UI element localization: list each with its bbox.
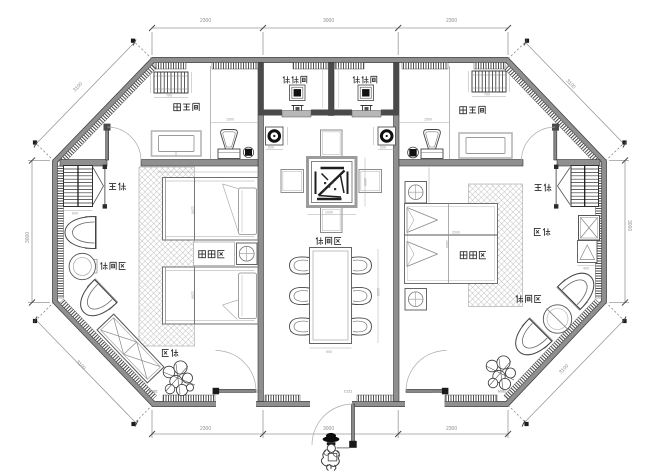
svg-text:C1815: C1815 — [479, 60, 489, 64]
svg-text:2000: 2000 — [452, 231, 460, 235]
svg-text:3000: 3000 — [323, 18, 334, 24]
svg-text:C1815: C1815 — [160, 60, 170, 64]
svg-text:C2015: C2015 — [409, 60, 419, 64]
svg-text:900: 900 — [326, 350, 332, 354]
svg-text:600: 600 — [380, 146, 386, 150]
svg-text:1500: 1500 — [226, 118, 234, 122]
svg-text:C121: C121 — [344, 390, 352, 394]
svg-text:C2015: C2015 — [219, 60, 229, 64]
svg-text:3000: 3000 — [25, 232, 31, 243]
svg-text:600: 600 — [72, 212, 78, 216]
svg-text:M082: M082 — [498, 390, 507, 394]
svg-text:C201: C201 — [432, 390, 440, 394]
svg-text:2300: 2300 — [446, 426, 457, 432]
svg-text:2300: 2300 — [200, 18, 211, 24]
svg-text:C201: C201 — [254, 390, 262, 394]
svg-text:M082: M082 — [149, 390, 158, 394]
svg-text:1000: 1000 — [325, 211, 333, 215]
svg-text:700: 700 — [166, 94, 172, 98]
svg-text:C0915: C0915 — [341, 60, 351, 64]
svg-text:C0915: C0915 — [281, 60, 291, 64]
svg-text:2300: 2300 — [446, 18, 457, 24]
svg-text:1800: 1800 — [445, 240, 449, 248]
svg-text:600: 600 — [268, 146, 274, 150]
svg-text:2300: 2300 — [200, 426, 211, 432]
svg-text:700: 700 — [484, 93, 490, 97]
svg-text:1500: 1500 — [363, 178, 367, 186]
svg-text:1500: 1500 — [424, 118, 432, 122]
svg-text:1200: 1200 — [191, 206, 195, 214]
svg-text:400: 400 — [583, 267, 589, 271]
svg-text:3000: 3000 — [626, 220, 632, 231]
svg-text:1200: 1200 — [191, 291, 195, 299]
svg-text:3000: 3000 — [323, 426, 334, 432]
svg-text:2000: 2000 — [376, 288, 380, 296]
